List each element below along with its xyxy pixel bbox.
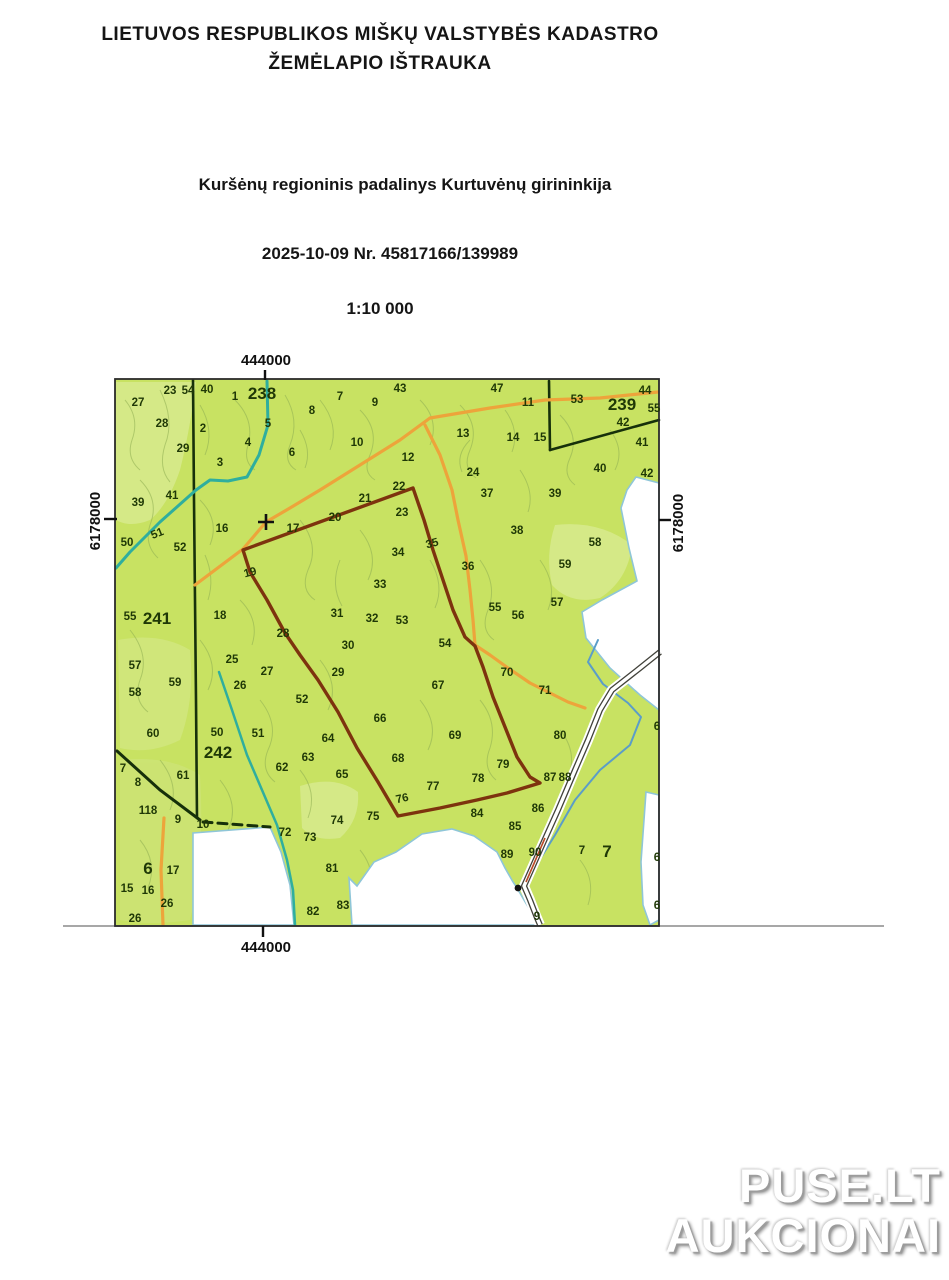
parcel-label: 28: [277, 628, 290, 640]
watermark-auctions: AUKCIONAI: [666, 1208, 941, 1263]
parcel-label: 54: [182, 385, 195, 397]
parcel-label: 55: [648, 403, 661, 415]
parcel-label: 67: [432, 680, 445, 692]
parcel-label: 40: [594, 463, 607, 475]
parcel-label: 28: [156, 418, 169, 430]
parcel-label: 75: [367, 811, 380, 823]
parcel-label: 30: [342, 640, 355, 652]
parcel-label: 21: [359, 493, 372, 505]
parcel-label: 18: [214, 610, 227, 622]
parcel-label: 3: [217, 457, 223, 469]
parcel-label: 33: [374, 579, 387, 591]
parcel-label: 78: [472, 773, 485, 785]
parcel-label: 52: [174, 542, 187, 554]
parcel-label: 34: [392, 547, 405, 559]
parcel-label: 86: [532, 803, 545, 815]
parcel-label: 39: [132, 497, 145, 509]
block-label: 6: [143, 859, 152, 878]
coordinate-label-left: 6178000: [87, 492, 104, 550]
parcel-label: 31: [331, 608, 344, 620]
parcel-label: 85: [509, 821, 522, 833]
parcel-label: 26: [129, 913, 142, 925]
parcel-label: 50: [211, 727, 224, 739]
parcel-label: 54: [439, 638, 452, 650]
parcel-label: 71: [539, 685, 552, 697]
cadastre-map: 4440004440006178000617800023544014347115…: [0, 0, 949, 1280]
parcel-label: 56: [512, 610, 525, 622]
parcel-label: 29: [177, 443, 190, 455]
parcel-label: 5: [265, 418, 272, 430]
parcel-label: 51: [252, 728, 265, 740]
block-label: 242: [204, 743, 232, 762]
coordinate-label-bottom: 444000: [241, 939, 291, 956]
parcel-label: 55: [124, 611, 137, 623]
parcel-label: 39: [549, 488, 562, 500]
parcel-label: 68: [392, 753, 405, 765]
coordinate-label-top: 444000: [241, 352, 291, 369]
parcel-label: 38: [511, 525, 524, 537]
parcel-label: 29: [332, 667, 345, 679]
parcel-label: 42: [617, 417, 630, 429]
parcel-label: 57: [129, 660, 142, 672]
parcel-label: 84: [471, 808, 484, 820]
block-label: 239: [608, 395, 636, 414]
parcel-label: 70: [501, 667, 514, 679]
parcel-label: 16: [142, 885, 155, 897]
parcel-label: 72: [279, 827, 292, 839]
block-boundary-239-a: [549, 381, 550, 450]
parcel-label: 79: [497, 759, 510, 771]
parcel-label: 11: [522, 397, 535, 409]
parcel-label: 77: [427, 781, 440, 793]
block-label: 7: [602, 842, 611, 861]
bridge-dot-marker: [515, 885, 522, 892]
parcel-label: 24: [467, 467, 480, 479]
parcel-label: 66: [374, 713, 387, 725]
parcel-label: 36: [462, 561, 475, 573]
parcel-label: 50: [121, 537, 134, 549]
parcel-label: 118: [139, 805, 158, 817]
parcel-label: 1: [232, 391, 239, 403]
parcel-label: 80: [554, 730, 567, 742]
parcel-label: 41: [636, 437, 649, 449]
parcel-label: 23: [164, 385, 177, 397]
parcel-label: 42: [641, 468, 654, 480]
parcel-label: 6: [654, 721, 660, 733]
block-label: 238: [248, 384, 276, 403]
parcel-label: 7: [337, 391, 343, 403]
parcel-label: 6: [289, 447, 295, 459]
parcel-label: 6: [654, 852, 660, 864]
parcel-label: 27: [132, 397, 145, 409]
parcel-label: 90: [529, 847, 542, 859]
coordinate-label-right: 6178000: [670, 494, 687, 552]
parcel-label: 2: [200, 423, 206, 435]
parcel-label: 61: [177, 770, 190, 782]
parcel-label: 32: [366, 613, 379, 625]
parcel-label: 9: [534, 911, 540, 923]
parcel-label: 37: [481, 488, 494, 500]
parcel-label: 17: [167, 865, 180, 877]
parcel-label: 62: [276, 762, 289, 774]
parcel-label: 58: [129, 687, 142, 699]
parcel-label: 7: [579, 845, 585, 857]
parcel-label: 57: [551, 597, 564, 609]
parcel-label: 43: [394, 383, 407, 395]
parcel-label: 82: [307, 906, 320, 918]
parcel-label: 23: [396, 507, 409, 519]
parcel-label: 55: [489, 602, 502, 614]
parcel-label: 13: [457, 428, 470, 440]
parcel-label: 73: [304, 832, 317, 844]
parcel-label: 41: [166, 490, 179, 502]
parcel-label: 20: [329, 512, 342, 524]
parcel-label: 25: [226, 654, 239, 666]
parcel-label: 88: [559, 772, 572, 784]
parcel-label: 15: [121, 883, 134, 895]
parcel-label: 6: [654, 900, 660, 912]
parcel-label: 26: [161, 898, 174, 910]
parcel-label: 9: [372, 397, 378, 409]
parcel-label: 16: [216, 523, 229, 535]
parcel-label: 58: [589, 537, 602, 549]
parcel-label: 53: [396, 615, 409, 627]
parcel-label: 26: [234, 680, 247, 692]
parcel-label: 81: [326, 863, 339, 875]
parcel-label: 59: [169, 677, 182, 689]
parcel-label: 8: [135, 777, 142, 789]
parcel-label: 83: [337, 900, 350, 912]
watermark-site-name: PUSE.LT: [739, 1158, 941, 1213]
parcel-label: 63: [302, 752, 315, 764]
parcel-label: 9: [175, 814, 181, 826]
parcel-label: 59: [559, 559, 572, 571]
parcel-label: 12: [402, 452, 415, 464]
parcel-label: 53: [571, 394, 584, 406]
block-label: 241: [143, 609, 171, 628]
parcel-label: 52: [296, 694, 309, 706]
parcel-label: 89: [501, 849, 514, 861]
parcel-label: 10: [351, 437, 364, 449]
parcel-label: 27: [261, 666, 274, 678]
parcel-label: 60: [147, 728, 160, 740]
parcel-label: 22: [393, 481, 406, 493]
parcel-label: 87: [544, 772, 557, 784]
parcel-label: 8: [309, 405, 316, 417]
parcel-label: 7: [120, 763, 126, 775]
parcel-label: 17: [287, 523, 300, 535]
parcel-label: 10: [197, 819, 210, 831]
parcel-label: 15: [534, 432, 547, 444]
parcel-label: 65: [336, 769, 349, 781]
parcel-label: 64: [322, 733, 335, 745]
parcel-label: 47: [491, 383, 504, 395]
parcel-label: 44: [639, 385, 652, 397]
parcel-label: 74: [331, 815, 344, 827]
parcel-label: 40: [201, 384, 214, 396]
parcel-label: 14: [507, 432, 520, 444]
parcel-label: 4: [245, 437, 252, 449]
parcel-label: 69: [449, 730, 462, 742]
cadastre-extract-page: LIETUVOS RESPUBLIKOS MIŠKŲ VALSTYBĖS KAD…: [0, 0, 949, 1280]
